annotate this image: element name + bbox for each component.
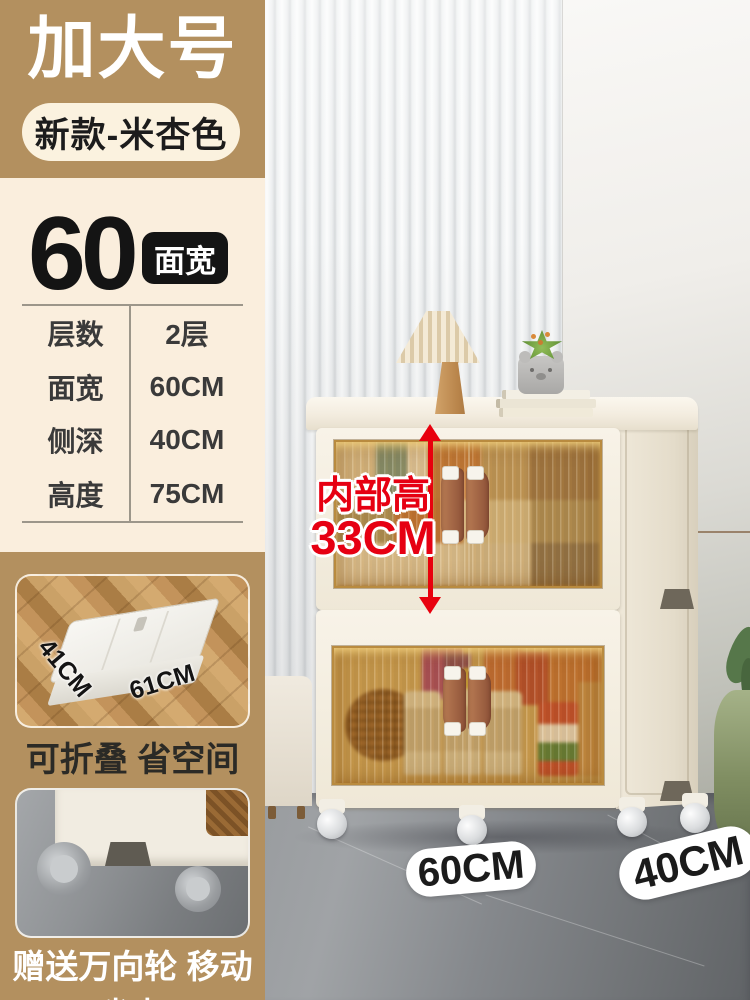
table-row: 面宽 60CM bbox=[22, 360, 243, 414]
wheel-hub bbox=[50, 855, 78, 883]
info-sidebar: 加大号 新款-米杏色 60 面宽 层数 2层 面宽 60CM 侧深 40CM bbox=[0, 0, 265, 1000]
storage-cabinet bbox=[300, 395, 700, 855]
wall-seam-line bbox=[698, 531, 750, 533]
spec-label: 面宽 bbox=[22, 360, 131, 414]
wheel-hub bbox=[186, 877, 210, 901]
spec-value: 75CM bbox=[131, 478, 243, 510]
width-badge: 面宽 bbox=[142, 232, 228, 284]
radiator-foot bbox=[268, 806, 276, 819]
measure-arrow-down bbox=[419, 597, 441, 614]
spec-label: 层数 bbox=[22, 306, 131, 360]
green-stool bbox=[714, 690, 750, 842]
handle-mount bbox=[444, 666, 461, 680]
size-title: 加大号 bbox=[0, 12, 265, 86]
handle-mount bbox=[444, 722, 461, 736]
size-header-block: 加大号 新款-米杏色 bbox=[0, 0, 265, 178]
succulent-tips bbox=[531, 334, 536, 339]
spec-panel: 60 面宽 层数 2层 面宽 60CM 侧深 40CM 高度 75CM bbox=[0, 178, 265, 552]
width-number: 60 bbox=[28, 204, 134, 304]
product-image: 内部高 33CM 60CM 40CM 加大号 新款-米杏色 60 面宽 层数 2… bbox=[0, 0, 750, 1000]
handle-mount bbox=[469, 666, 486, 680]
variant-label: 新款-米杏色 bbox=[35, 107, 228, 158]
spec-value: 60CM bbox=[131, 371, 243, 403]
handle-mount bbox=[467, 466, 484, 480]
drawer-notch bbox=[105, 842, 151, 866]
spec-label: 侧深 bbox=[22, 414, 131, 468]
bear-planter bbox=[518, 356, 564, 394]
cabinet-side-panel bbox=[616, 413, 698, 809]
handle-mount bbox=[469, 722, 486, 736]
inner-height-annotation: 内部高 33CM bbox=[298, 477, 448, 561]
spec-label: 高度 bbox=[22, 467, 131, 521]
inner-height-value: 33CM bbox=[298, 515, 448, 561]
table-row: 层数 2层 bbox=[22, 306, 243, 360]
side-handle-hole bbox=[660, 589, 694, 609]
handle-mount bbox=[467, 530, 484, 544]
caster-wheel bbox=[615, 797, 649, 843]
fold-caption: 可折叠 省空间 bbox=[0, 732, 265, 781]
spec-value: 2层 bbox=[131, 313, 243, 353]
spec-value: 40CM bbox=[131, 424, 243, 456]
wheels-photo bbox=[15, 788, 250, 938]
folded-box-photo: 41CM 61CM bbox=[15, 574, 250, 728]
cabinet-lower-unit bbox=[316, 610, 620, 808]
spec-table: 层数 2层 面宽 60CM 侧深 40CM 高度 75CM bbox=[22, 304, 243, 523]
width-dimension-text: 60CM bbox=[416, 842, 526, 896]
wheel-caption: 赠送万向轮 移动省力 bbox=[0, 940, 265, 1000]
inner-height-text: 内部高 bbox=[298, 477, 448, 515]
variant-pill: 新款-米杏色 bbox=[22, 103, 240, 161]
measure-arrow-up bbox=[419, 424, 441, 441]
wicker-basket bbox=[206, 790, 248, 836]
table-row: 高度 75CM bbox=[22, 467, 243, 521]
table-row: 侧深 40CM bbox=[22, 414, 243, 468]
feature-block: 41CM 61CM 可折叠 省空间 赠送万向轮 移动省力 bbox=[0, 552, 265, 1000]
caster-wheel bbox=[315, 799, 349, 845]
book-stack bbox=[496, 390, 594, 417]
